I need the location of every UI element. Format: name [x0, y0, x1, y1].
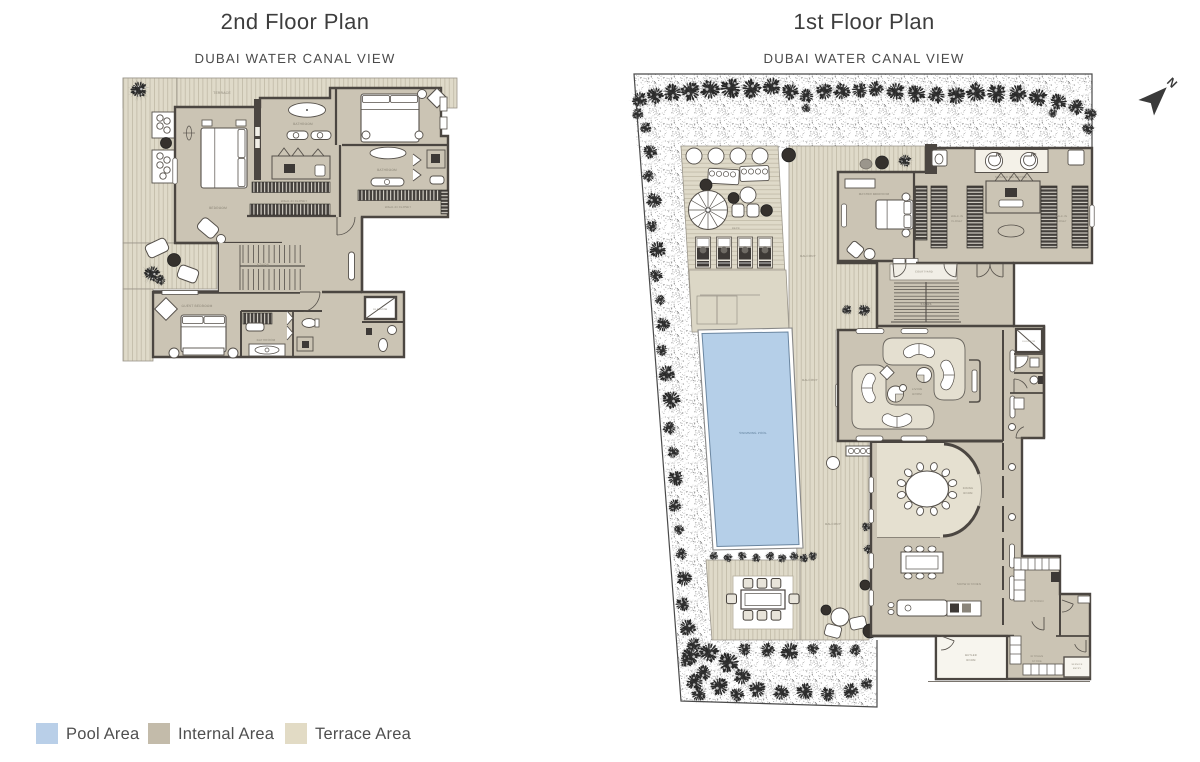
svg-text:ENTRY: ENTRY — [1073, 667, 1082, 670]
svg-text:KITCHEN: KITCHEN — [1031, 655, 1044, 658]
svg-text:TERRACE: TERRACE — [213, 91, 231, 95]
svg-text:BALCONY: BALCONY — [800, 254, 816, 258]
svg-text:CLOSET: CLOSET — [951, 220, 963, 223]
svg-text:DUBAI WATER CANAL VIEW: DUBAI WATER CANAL VIEW — [763, 51, 964, 66]
svg-text:DINING: DINING — [963, 487, 974, 490]
svg-text:Internal Area: Internal Area — [178, 725, 275, 743]
svg-text:SHOW KITCHEN: SHOW KITCHEN — [957, 582, 981, 586]
svg-text:BUTLER: BUTLER — [965, 654, 977, 657]
svg-text:WALK-IN: WALK-IN — [1055, 215, 1067, 218]
svg-text:BALCONY: BALCONY — [802, 378, 818, 382]
svg-text:WALK-IN CLOSET: WALK-IN CLOSET — [281, 199, 307, 203]
svg-text:DUBAI WATER CANAL VIEW: DUBAI WATER CANAL VIEW — [194, 51, 395, 66]
svg-text:ELEVATOR: ELEVATOR — [374, 308, 388, 311]
svg-text:WALK-IN: WALK-IN — [951, 215, 963, 218]
svg-text:Terrace Area: Terrace Area — [315, 725, 412, 743]
svg-text:GUEST BEDROOM: GUEST BEDROOM — [182, 304, 213, 308]
svg-text:ELEVATOR: ELEVATOR — [1023, 340, 1036, 343]
svg-text:LIVING: LIVING — [912, 387, 922, 391]
svg-text:SERVICE: SERVICE — [1072, 663, 1083, 666]
svg-text:BALCONY: BALCONY — [825, 522, 841, 526]
svg-text:ROOM: ROOM — [966, 659, 976, 662]
svg-text:COURTYARD: COURTYARD — [915, 271, 933, 274]
svg-text:MASTER BEDROOM: MASTER BEDROOM — [859, 192, 890, 196]
svg-text:STAIRS: STAIRS — [920, 302, 931, 306]
svg-text:KITCHEN: KITCHEN — [1030, 600, 1043, 603]
svg-text:DECK: DECK — [732, 227, 740, 230]
svg-text:1st Floor Plan: 1st Floor Plan — [793, 9, 934, 34]
svg-text:BATHROOM: BATHROOM — [257, 338, 276, 342]
svg-text:ROOM: ROOM — [963, 492, 973, 495]
svg-text:BATHROOM: BATHROOM — [377, 168, 397, 172]
svg-text:BATHROOM: BATHROOM — [293, 122, 313, 126]
svg-text:CLOSET: CLOSET — [1055, 220, 1067, 223]
svg-text:2nd Floor Plan: 2nd Floor Plan — [221, 9, 370, 34]
svg-text:SWIMMING POOL: SWIMMING POOL — [739, 431, 767, 435]
svg-text:ROOM: ROOM — [912, 392, 922, 396]
svg-text:Pool Area: Pool Area — [66, 725, 140, 743]
svg-text:STAIRS: STAIRS — [257, 263, 269, 267]
svg-text:BEDROOM: BEDROOM — [209, 206, 227, 210]
svg-text:STORE: STORE — [1032, 660, 1042, 663]
svg-text:WALK-IN CLOSET: WALK-IN CLOSET — [385, 205, 411, 209]
